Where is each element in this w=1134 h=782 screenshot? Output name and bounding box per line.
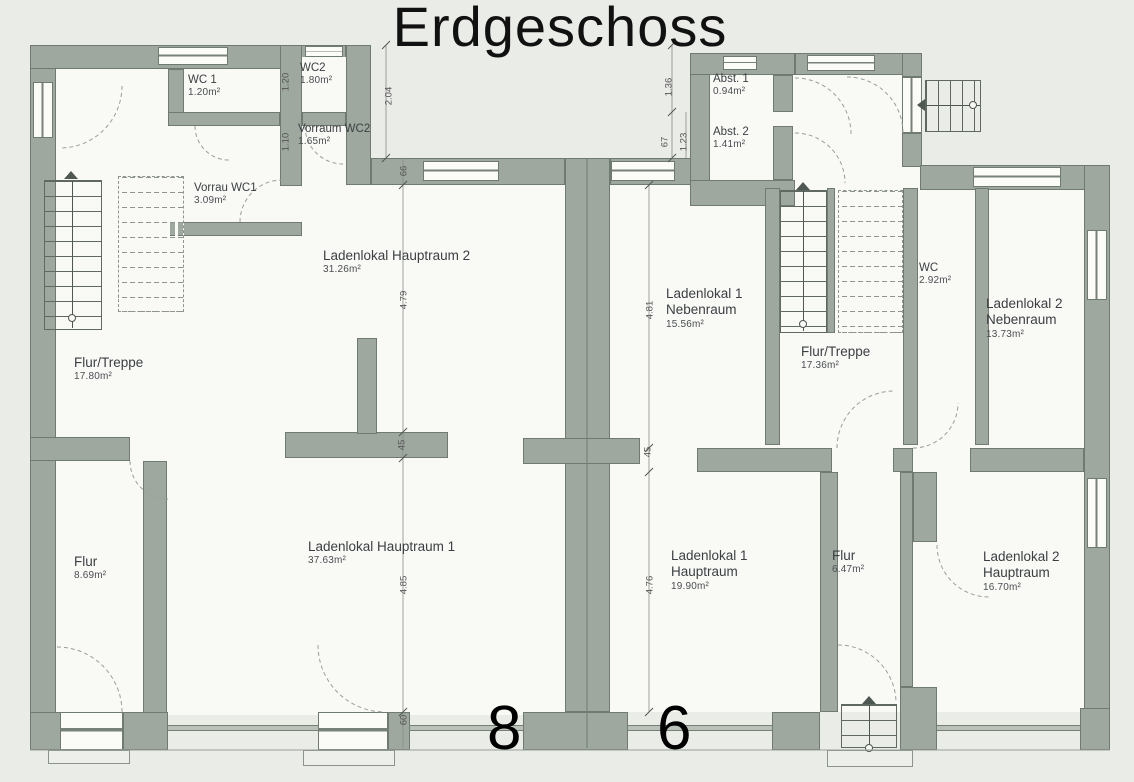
door-arc [795, 78, 851, 134]
room-label-wc1: WC 1 1.20m² [188, 73, 220, 99]
room-label-abst-1: Abst. 1 0.94m² [713, 72, 749, 98]
door-arc [60, 86, 122, 148]
door-arc [318, 645, 385, 712]
door-arc [837, 391, 894, 448]
room-area: 16.70m² [983, 582, 1093, 594]
room-area: 13.73m² [986, 329, 1090, 341]
room-area: 6.47m² [832, 564, 864, 576]
room-name: Flur/Treppe [74, 355, 143, 370]
room-label-vorrau-wc1: Vorrau WC1 3.09m² [194, 181, 257, 207]
room-name: Abst. 2 [713, 126, 749, 138]
room-label-ladenlokal-1-nebenraum: Ladenlokal 1 Nebenraum 15.56m² [666, 286, 770, 331]
dimension-lines [386, 45, 686, 750]
room-area: 31.26m² [323, 264, 470, 276]
dimension-label: 4.81 [645, 301, 656, 320]
room-area: 0.94m² [713, 86, 749, 98]
floor-plan: WC 1 1.20m² WC2 1.80m² Vorraum WC2 1.65m… [0, 0, 1134, 782]
door-arc [795, 133, 845, 183]
dimension-label: 45 [397, 440, 408, 451]
door-arc [130, 461, 168, 499]
dimension-label: 60 [399, 715, 410, 726]
room-area: 1.20m² [188, 87, 220, 99]
room-name: Abst. 1 [713, 73, 749, 85]
door-arc [847, 77, 903, 133]
house-number-8: 8 [487, 693, 521, 764]
room-area: 15.56m² [666, 319, 770, 331]
door-arc [57, 647, 122, 712]
room-area: 17.36m² [801, 360, 870, 372]
room-label-ladenlokal-1-hauptraum: Ladenlokal 1 Hauptraum 19.90m² [671, 548, 781, 593]
dimension-label: 45 [643, 447, 654, 458]
dimension-label: 4.79 [399, 291, 410, 310]
room-label-ladenlokal-hauptraum-2: Ladenlokal Hauptraum 2 31.26m² [323, 248, 470, 277]
room-name: Flur [832, 548, 855, 563]
dimension-label: 1.23 [679, 133, 690, 152]
room-label-flur-treppe-8: Flur/Treppe 17.80m² [74, 355, 143, 384]
room-label-flur-8: Flur 8.69m² [74, 554, 106, 583]
door-arc [937, 545, 989, 597]
room-area: 1.41m² [713, 139, 749, 151]
room-area: 17.80m² [74, 371, 143, 383]
room-name: Vorraum WC2 [298, 123, 370, 135]
door-arc [913, 403, 958, 448]
room-label-ladenlokal-2-hauptraum: Ladenlokal 2 Hauptraum 16.70m² [983, 549, 1093, 594]
room-name: Ladenlokal 2 Hauptraum [983, 549, 1060, 580]
house-number-6: 6 [657, 693, 691, 764]
dimension-label: 1.10 [281, 133, 292, 152]
dimension-label: 4.85 [399, 576, 410, 595]
dimension-ticks [382, 41, 676, 716]
room-area: 37.63m² [308, 555, 455, 567]
dimension-label: 1.36 [664, 78, 675, 97]
room-label-ladenlokal-2-nebenraum: Ladenlokal 2 Nebenraum 13.73m² [986, 296, 1090, 341]
room-name: WC [919, 262, 938, 274]
room-area: 1.65m² [298, 136, 370, 148]
dimension-label: 2.04 [384, 87, 395, 106]
room-name: Ladenlokal 1 Hauptraum [671, 548, 748, 579]
room-name: Flur/Treppe [801, 344, 870, 359]
door-swing-arcs [57, 77, 989, 712]
room-name: Ladenlokal 2 Nebenraum [986, 296, 1063, 327]
dimension-label: 67 [660, 137, 671, 148]
dimension-label: 66 [399, 166, 410, 177]
room-name: WC2 [300, 62, 326, 74]
room-label-flur-6: Flur 6.47m² [832, 548, 864, 577]
room-label-wc2: WC2 1.80m² [300, 61, 332, 87]
room-label-abst-2: Abst. 2 1.41m² [713, 125, 749, 151]
room-name: Ladenlokal Hauptraum 1 [308, 539, 455, 554]
dimension-label: 1.20 [281, 73, 292, 92]
room-name: Ladenlokal Hauptraum 2 [323, 248, 470, 263]
room-name: Flur [74, 554, 97, 569]
room-label-ladenlokal-hauptraum-1: Ladenlokal Hauptraum 1 37.63m² [308, 539, 455, 568]
page-title: Erdgeschoss [360, 0, 760, 59]
annotation-overlay [0, 0, 1134, 782]
room-label-wc-6: WC 2.92m² [919, 261, 951, 287]
room-label-vorraum-wc2: Vorraum WC2 1.65m² [298, 122, 370, 148]
room-area: 8.69m² [74, 570, 106, 582]
room-area: 3.09m² [194, 195, 257, 207]
room-name: Ladenlokal 1 Nebenraum [666, 286, 743, 317]
room-area: 19.90m² [671, 581, 781, 593]
room-name: Vorrau WC1 [194, 182, 257, 194]
room-label-flur-treppe-6: Flur/Treppe 17.36m² [801, 344, 870, 373]
room-area: 2.92m² [919, 275, 951, 287]
door-arc [838, 645, 896, 703]
door-arc [195, 126, 229, 160]
room-name: WC 1 [188, 74, 217, 86]
dimension-label: 4.76 [645, 576, 656, 595]
room-area: 1.80m² [300, 75, 332, 87]
